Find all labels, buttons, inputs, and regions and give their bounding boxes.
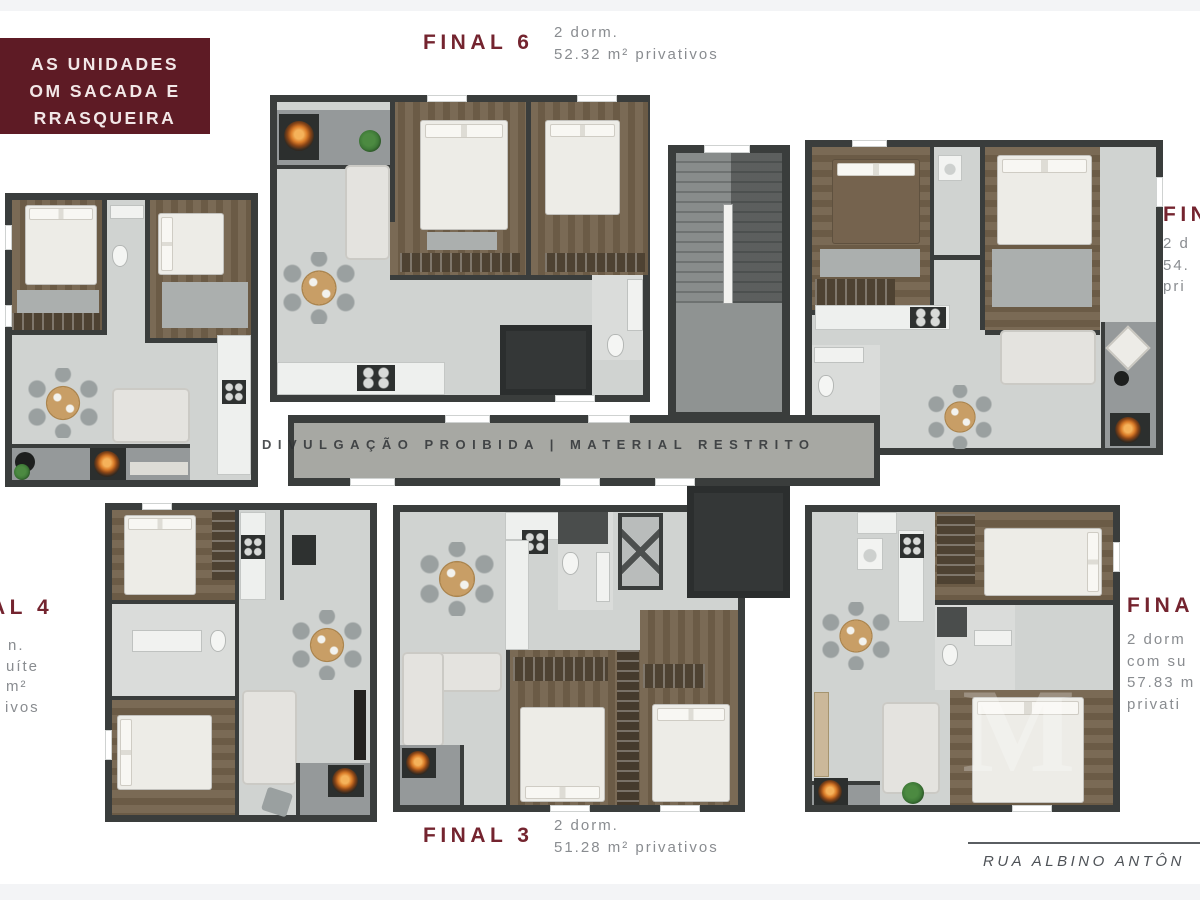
floor-plan-unit-top-right <box>805 140 1163 455</box>
bed-pillows <box>657 708 725 721</box>
kitchen-counter <box>505 540 529 650</box>
kitchen-counter <box>217 335 251 475</box>
bathroom-vanity <box>110 205 144 219</box>
grill-icon <box>818 780 842 804</box>
sofa <box>345 165 390 260</box>
balcony-table <box>1114 371 1129 386</box>
bathroom-vanity <box>596 552 610 602</box>
rug <box>992 249 1092 307</box>
window <box>142 503 172 510</box>
promo-badge-line: OM SACADA E <box>0 78 210 105</box>
unit-label-final-6: FINAL 6 <box>423 31 533 55</box>
kitchen-counter <box>857 512 897 534</box>
window <box>577 95 617 102</box>
wall-segment <box>12 330 107 335</box>
wall-segment <box>102 200 107 330</box>
promo-badge-line: AS UNIDADES <box>0 51 210 78</box>
wall-segment <box>874 415 880 486</box>
grill-icon <box>1115 417 1141 443</box>
bed <box>117 715 212 790</box>
bed-pillows <box>161 217 173 271</box>
unit-spec-right-bottom-1: 2 dorm <box>1127 631 1186 648</box>
toilet <box>818 375 834 397</box>
unit-spec-right-top-1: 2 d <box>1163 235 1190 252</box>
stove-icon <box>222 380 246 404</box>
door-threshold <box>655 478 695 486</box>
wardrobe <box>513 657 608 681</box>
bed-pillows <box>550 124 615 137</box>
window <box>105 730 112 760</box>
wardrobe <box>815 279 895 305</box>
wall-segment <box>460 745 464 805</box>
rug <box>162 282 248 328</box>
dining-table <box>292 610 362 680</box>
photo-watermark-letter: M <box>962 662 1075 800</box>
unit-spec-final-3-dorm: 2 dorm. <box>554 817 619 834</box>
toilet <box>607 334 624 357</box>
shower <box>937 607 967 637</box>
unit-spec-right-top-2: 54. <box>1163 257 1190 274</box>
sofa <box>882 702 940 794</box>
bed <box>652 704 730 802</box>
dining-table <box>28 368 98 438</box>
bed-pillows <box>120 719 132 786</box>
window <box>1113 542 1120 572</box>
wardrobe <box>400 253 520 272</box>
bed-pillows <box>1087 532 1099 592</box>
plant-icon <box>902 782 924 804</box>
wardrobe <box>12 313 100 330</box>
stove-icon <box>357 365 395 391</box>
sofa <box>242 690 297 785</box>
unit-spec-right-bottom-4: privati <box>1127 696 1181 713</box>
unit-label-final-4: AL 4 <box>0 596 53 620</box>
unit-spec-final-4-3: m² <box>6 678 28 695</box>
wall-segment <box>235 510 239 600</box>
toilet <box>112 245 128 267</box>
promo-badge-line: RRASQUEIRA <box>0 105 210 132</box>
window <box>660 805 700 812</box>
bed-pillows <box>128 518 192 530</box>
unit-spec-right-bottom-2: com su <box>1127 653 1187 670</box>
door-threshold <box>350 478 395 486</box>
entry-door <box>555 395 595 402</box>
window <box>1156 177 1163 207</box>
wardrobe <box>937 514 975 584</box>
sofa <box>1000 330 1096 385</box>
wardrobe <box>212 510 235 580</box>
top-edge-band <box>0 0 1200 11</box>
armchair <box>261 787 293 818</box>
window <box>1012 805 1052 812</box>
window <box>852 140 887 147</box>
toilet <box>210 630 226 652</box>
wall-segment <box>930 255 985 260</box>
unit-spec-final-6-area: 52.32 m² privativos <box>554 46 719 63</box>
door-threshold <box>588 415 630 423</box>
door-threshold <box>560 478 600 486</box>
wall-segment <box>526 102 531 275</box>
window <box>427 95 467 102</box>
balcony-bench <box>130 462 188 475</box>
bed-pillows <box>1002 159 1087 173</box>
toilet <box>562 552 579 575</box>
bathroom-vanity <box>132 630 202 652</box>
grill-icon <box>94 451 120 477</box>
core-entry <box>704 145 750 153</box>
unit-label-right-top: FIN <box>1163 203 1200 227</box>
wardrobe <box>643 664 705 688</box>
floor-plan-unit-bottom-right: M <box>805 505 1120 812</box>
duct-shaft <box>618 513 663 590</box>
floor-plan-unit-final-4 <box>105 503 377 822</box>
wall-segment <box>235 600 239 815</box>
unit-spec-final-4-1: n. <box>8 637 25 654</box>
stair-core <box>668 145 790 420</box>
promo-badge: AS UNIDADES OM SACADA E RRASQUEIRA <box>0 38 210 134</box>
kitchen-island <box>292 535 316 565</box>
elevator-shaft <box>687 486 790 598</box>
unit-label-final-3: FINAL 3 <box>423 824 533 848</box>
bed <box>997 155 1092 245</box>
bed-pillows <box>525 786 600 799</box>
grill-icon <box>406 751 430 775</box>
wall-segment <box>980 147 985 330</box>
wall-segment <box>280 510 284 600</box>
bed <box>124 515 196 595</box>
wall-segment <box>390 102 395 222</box>
grill-icon <box>332 768 358 794</box>
bed-pillows <box>837 163 915 176</box>
bed <box>545 120 620 215</box>
door-threshold <box>445 415 490 423</box>
bathroom-vanity <box>974 630 1012 646</box>
unit-spec-right-top-3: pri <box>1163 278 1186 295</box>
service-shaft <box>500 325 592 395</box>
bed-pillows <box>425 124 503 138</box>
stove-icon <box>910 307 946 328</box>
grill-icon <box>284 121 314 151</box>
window <box>5 305 12 327</box>
bed <box>25 205 97 285</box>
bathroom-vanity <box>814 347 864 363</box>
rug <box>820 249 920 277</box>
bed <box>984 528 1102 596</box>
rug <box>427 232 497 250</box>
wardrobe <box>545 253 645 272</box>
unit-label-right-bottom: FINA <box>1127 594 1194 618</box>
dining-table <box>420 542 494 616</box>
street-rule <box>968 842 1200 844</box>
unit-spec-final-3-area: 51.28 m² privativos <box>554 839 719 856</box>
washing-machine <box>938 155 962 181</box>
unit-spec-right-bottom-3: 57.83 m <box>1127 674 1195 691</box>
toilet <box>942 644 958 666</box>
sofa <box>402 652 444 747</box>
plant-icon <box>359 130 381 152</box>
bottom-edge-band <box>0 884 1200 900</box>
stove-icon <box>900 534 924 558</box>
fridge <box>857 538 883 570</box>
bed <box>832 159 920 244</box>
shelf-tower <box>617 650 639 805</box>
wall-segment <box>930 147 934 310</box>
tv-panel <box>354 690 366 760</box>
shower <box>558 512 608 544</box>
unit-spec-final-6-dorm: 2 dorm. <box>554 24 619 41</box>
plant-icon <box>14 464 30 480</box>
bed <box>520 707 605 802</box>
bed <box>420 120 508 230</box>
sideboard <box>814 692 829 777</box>
window <box>550 805 590 812</box>
stove-icon <box>241 535 265 559</box>
window <box>5 225 12 250</box>
restricted-watermark: DIVULGAÇÃO PROIBIDA | MATERIAL RESTRITO <box>262 437 816 452</box>
bed-pillows <box>29 208 93 220</box>
floor-plan-sheet: M AS UNIDADES OM SACADA E RRASQUEIRA FIN… <box>0 0 1200 900</box>
bed <box>158 213 224 275</box>
street-name: RUA ALBINO ANTÔN <box>983 853 1185 870</box>
wall-segment <box>145 200 150 338</box>
sofa <box>112 388 190 443</box>
dining-table <box>928 385 992 449</box>
floor-plan-unit-left <box>5 193 258 487</box>
dining-table <box>822 602 890 670</box>
dining-table <box>283 252 355 324</box>
stair-rail <box>724 205 732 303</box>
bathroom-vanity <box>627 279 643 331</box>
unit-spec-final-4-2: uíte <box>6 658 39 675</box>
floor-plan-unit-final-6 <box>270 95 650 402</box>
unit-spec-final-4-4: ivos <box>5 699 40 716</box>
